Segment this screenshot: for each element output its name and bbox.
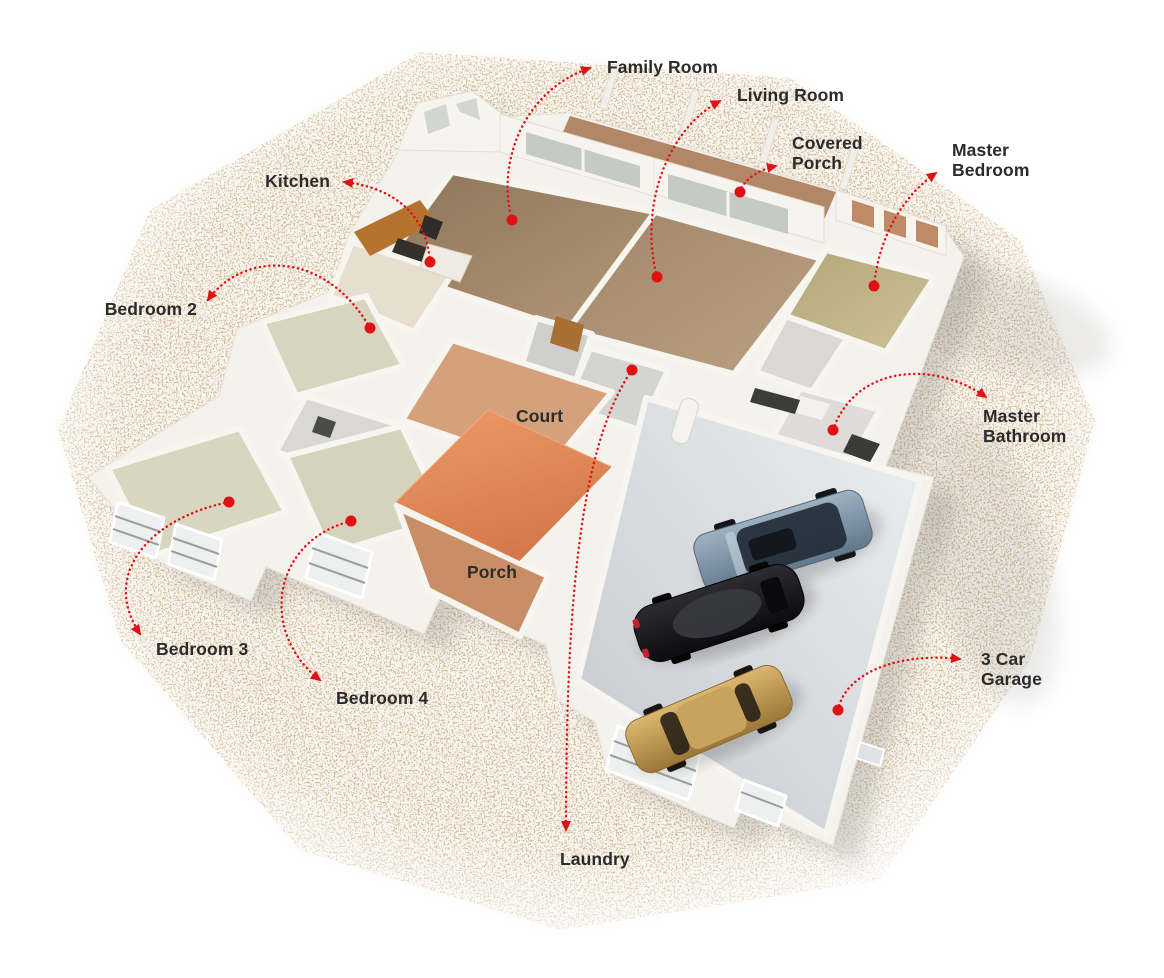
dot-bedroom-2: [365, 323, 376, 334]
dot-living-room: [652, 272, 663, 283]
dot-kitchen: [425, 257, 436, 268]
leader-living-room: [651, 101, 720, 277]
dot-master-bedroom: [869, 281, 880, 292]
leader-three-car-garage: [838, 658, 960, 710]
leader-bedroom-4: [282, 521, 351, 680]
leader-bedroom-3: [126, 502, 229, 634]
leader-bedroom-2: [208, 266, 370, 328]
dot-bedroom-3: [224, 497, 235, 508]
leader-kitchen: [344, 182, 430, 262]
leader-family-room: [508, 68, 590, 220]
dot-bedroom-4: [346, 516, 357, 527]
leader-covered-porch: [740, 166, 776, 192]
dot-master-bathroom: [828, 425, 839, 436]
leader-master-bathroom: [833, 374, 986, 430]
dot-three-car-garage: [833, 705, 844, 716]
dot-laundry: [627, 365, 638, 376]
leader-master-bedroom: [874, 173, 936, 286]
leader-laundry: [566, 370, 632, 830]
floor-plan-diagram: Family RoomLiving RoomCoveredPorchMaster…: [0, 0, 1164, 978]
dot-family-room: [507, 215, 518, 226]
dot-covered-porch: [735, 187, 746, 198]
leader-lines: [0, 0, 1164, 978]
